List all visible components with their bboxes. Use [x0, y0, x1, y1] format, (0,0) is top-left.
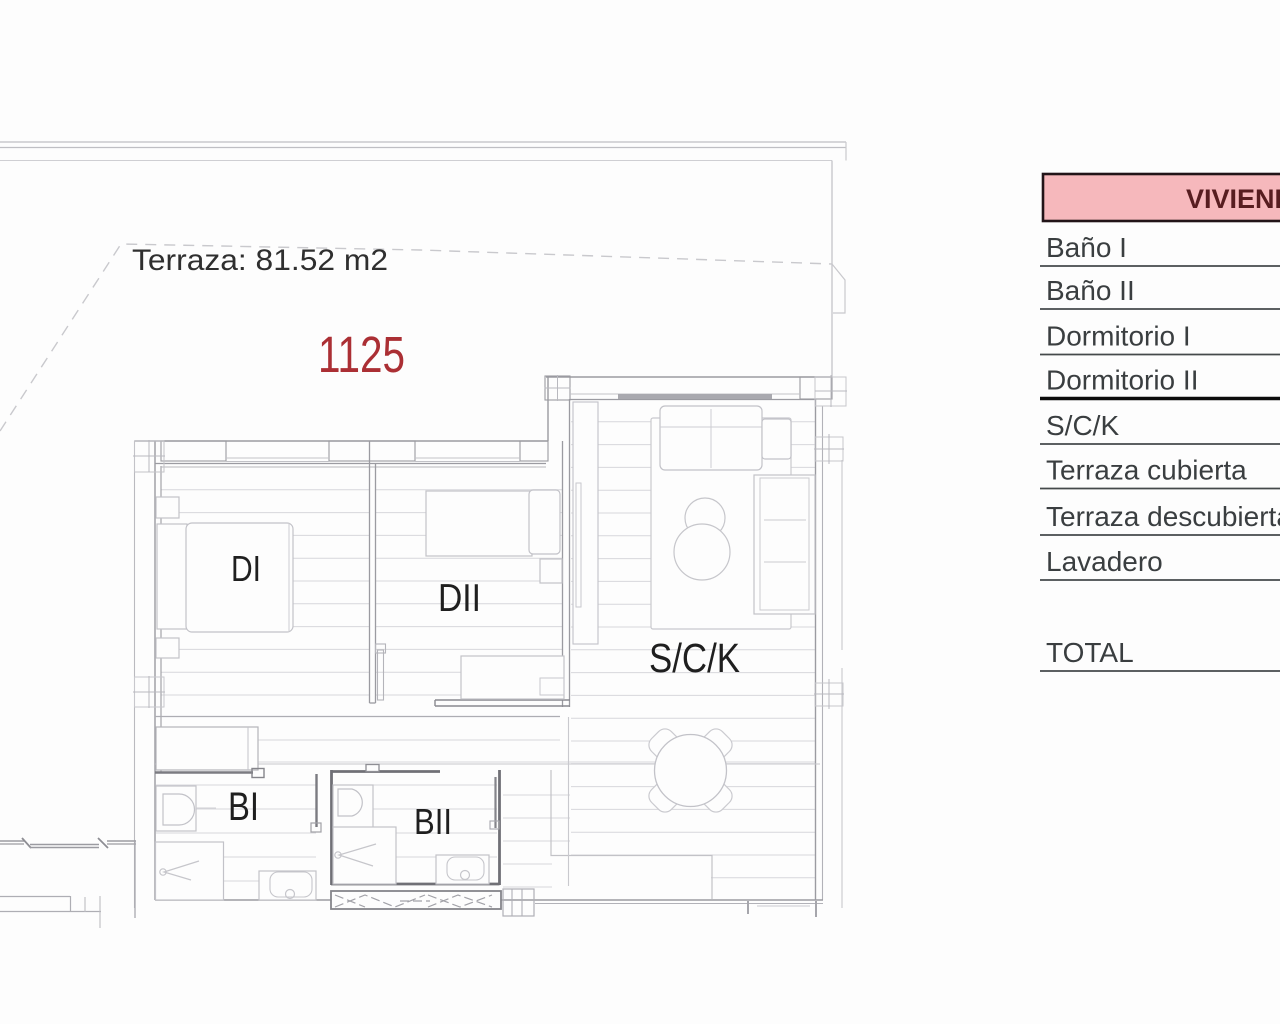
svg-text:Terraza: 81.52 m2: Terraza: 81.52 m2 [132, 244, 388, 277]
svg-text:Dormitorio II: Dormitorio II [1046, 365, 1198, 396]
svg-text:1125: 1125 [318, 326, 405, 383]
svg-text:BI: BI [228, 785, 259, 829]
svg-text:DI: DI [231, 548, 261, 589]
svg-text:Baño II: Baño II [1046, 275, 1135, 306]
svg-text:Baño I: Baño I [1046, 232, 1127, 263]
svg-text:TOTAL: TOTAL [1046, 637, 1134, 668]
svg-text:DII: DII [438, 577, 481, 620]
svg-text:VIVIENDA: VIVIENDA [1186, 184, 1280, 214]
svg-text:S/C/K: S/C/K [649, 635, 740, 681]
svg-text:Lavadero: Lavadero [1046, 546, 1163, 577]
svg-text:Terraza cubierta: Terraza cubierta [1046, 455, 1247, 486]
svg-text:BII: BII [414, 801, 452, 842]
svg-text:S/C/K: S/C/K [1046, 410, 1119, 441]
svg-text:Terraza descubierta: Terraza descubierta [1046, 501, 1280, 532]
svg-text:Dormitorio I: Dormitorio I [1046, 321, 1191, 352]
